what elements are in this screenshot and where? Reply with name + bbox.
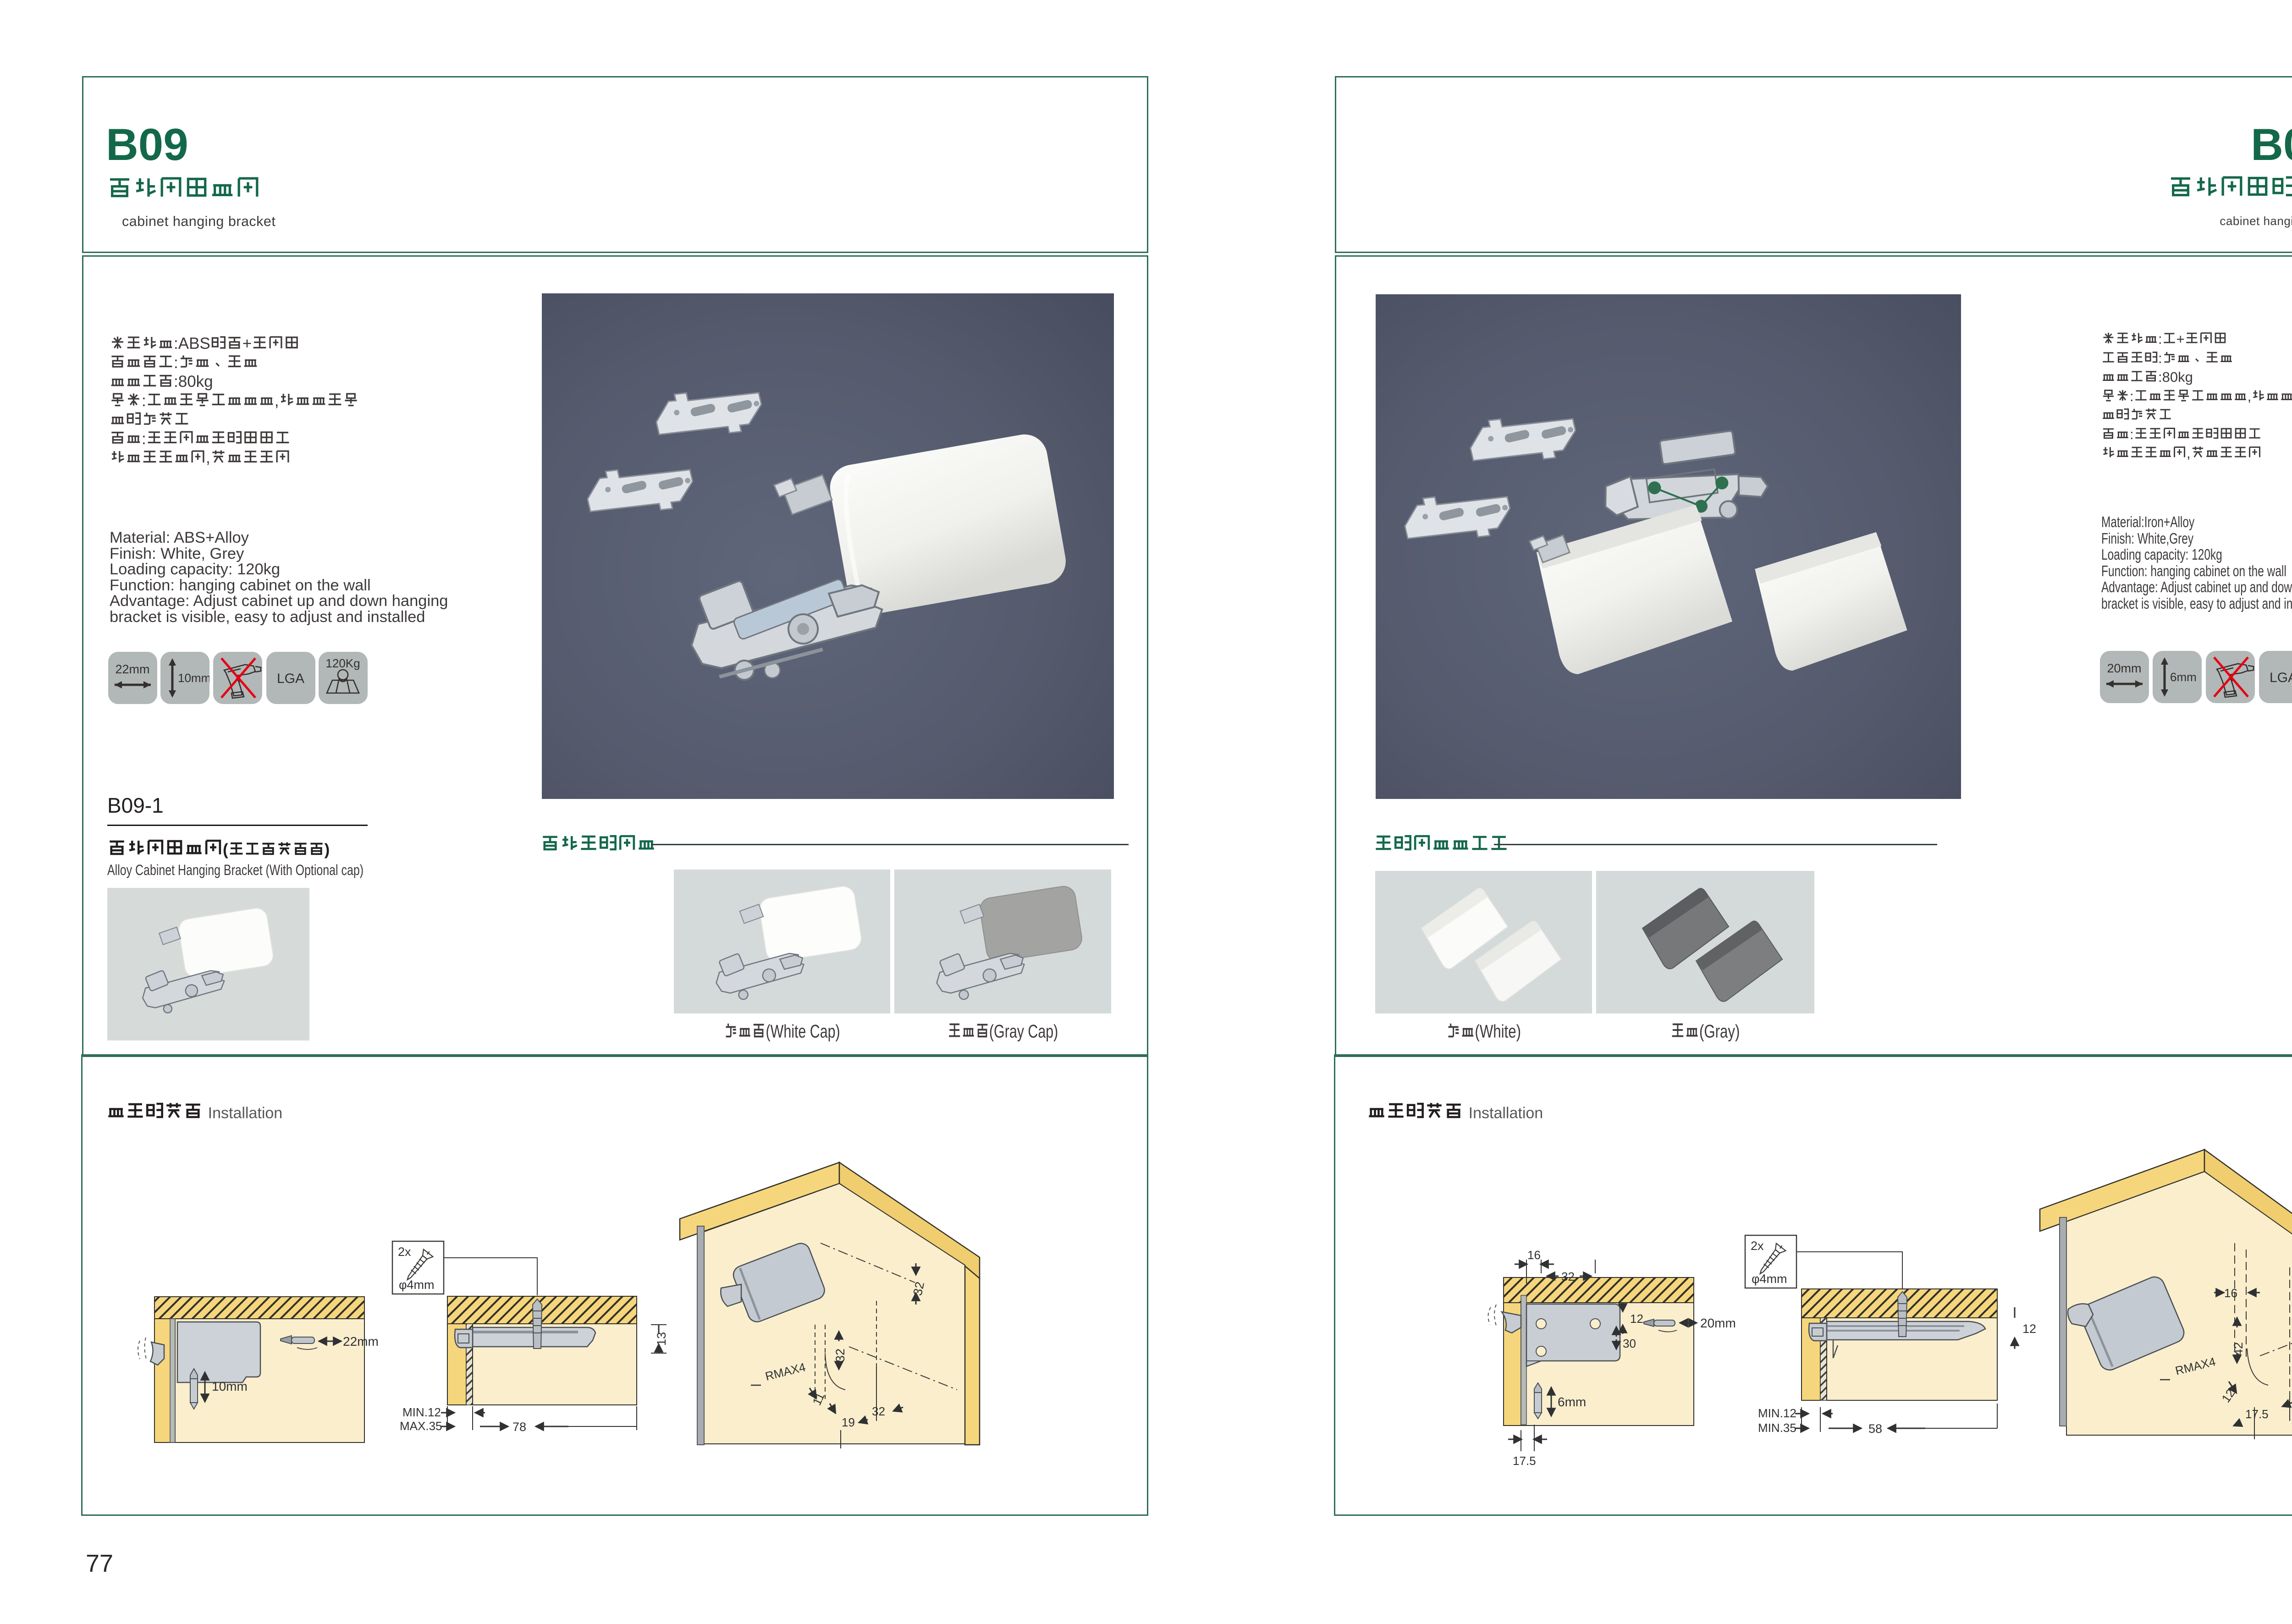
svg-text:120Kg: 120Kg	[325, 656, 360, 670]
svg-text:LGA: LGA	[2270, 670, 2292, 685]
svg-text:12: 12	[2022, 1322, 2036, 1336]
svg-text:17.5: 17.5	[2245, 1407, 2269, 1421]
svg-text:12: 12	[1630, 1312, 1643, 1326]
svg-text:32: 32	[872, 1404, 885, 1418]
svg-text:MIN.35: MIN.35	[1758, 1421, 1796, 1435]
svg-text:78: 78	[512, 1420, 526, 1434]
svg-text:16: 16	[2224, 1286, 2237, 1300]
svg-text:10mm: 10mm	[212, 1379, 248, 1393]
svg-text:32: 32	[1561, 1270, 1575, 1283]
svg-text:19: 19	[842, 1415, 855, 1429]
svg-text:32: 32	[833, 1349, 847, 1362]
svg-text:16: 16	[1527, 1248, 1541, 1262]
svg-text:58: 58	[1868, 1422, 1882, 1436]
svg-text:LGA: LGA	[277, 671, 304, 686]
svg-text:22mm: 22mm	[115, 662, 149, 676]
svg-text:30: 30	[1623, 1337, 1636, 1350]
svg-text:2x: 2x	[1751, 1239, 1764, 1253]
svg-text:φ4mm: φ4mm	[399, 1278, 435, 1292]
svg-text:6mm: 6mm	[2170, 670, 2197, 684]
svg-text:20mm: 20mm	[1700, 1316, 1736, 1330]
svg-text:22mm: 22mm	[343, 1334, 379, 1349]
svg-text:2x: 2x	[398, 1245, 411, 1259]
svg-text:32: 32	[911, 1281, 927, 1297]
svg-text:φ4mm: φ4mm	[1752, 1272, 1787, 1286]
svg-text:6mm: 6mm	[1558, 1395, 1586, 1409]
svg-text:MIN.12: MIN.12	[402, 1405, 441, 1419]
svg-text:13: 13	[655, 1332, 668, 1346]
svg-text:MIN.12: MIN.12	[1758, 1406, 1796, 1420]
svg-text:42: 42	[2231, 1342, 2245, 1356]
svg-text:20mm: 20mm	[2107, 661, 2141, 675]
svg-text:10mm: 10mm	[178, 671, 209, 685]
svg-text:17.5: 17.5	[1513, 1454, 1536, 1468]
svg-text:MAX.35: MAX.35	[400, 1419, 442, 1433]
